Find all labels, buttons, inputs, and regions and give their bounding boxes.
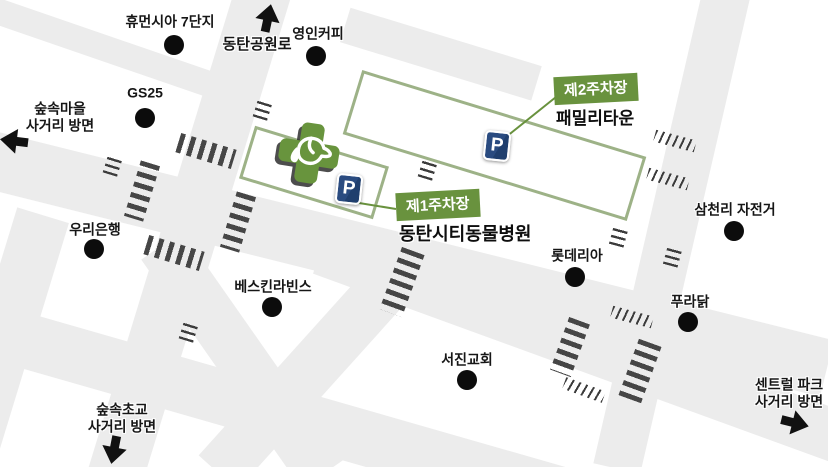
direction-line1: 숲속마을 [26,100,94,117]
hospital-name-label: 동탄시티동물병원 [399,220,531,246]
p-letter: P [342,177,357,200]
poi-label-lotteria: 롯데리아 [551,248,603,265]
road-name-dongtan-gongwonro: 동탄공원로 [222,36,291,54]
direction-line1: 숲속초교 [88,401,156,418]
poi-label-puradak: 푸라닭 [671,294,710,311]
poi-label-humansia: 휴먼시아 7단지 [126,14,215,31]
guide-map: P P 제1주차장 제2주차장 동탄시티동물병원 패밀리타운 휴먼시아 7단지 … [0,0,828,467]
poi-dot-seojin-church [457,370,477,390]
poi-dot-samchully-bicycle [724,221,744,241]
poi-dot-yeongin-coffee [306,46,326,66]
direction-line1: 센트럴 파크 [755,376,823,393]
poi-dot-lotteria [565,267,585,287]
familytown-label: 패밀리타운 [556,104,634,129]
direction-line2: 사거리 방면 [88,418,156,435]
poi-dot-baskin-robbins [262,297,282,317]
direction-line2: 사거리 방면 [26,117,94,134]
left-arrow-icon [0,124,34,158]
poi-label-woori-bank: 우리은행 [69,222,121,239]
down-arrow-icon [96,429,132,467]
poi-dot-humansia [164,35,184,55]
poi-dot-woori-bank [84,239,104,259]
poi-dot-gs25 [135,108,155,128]
direction-label-central-park: 센트럴 파크 사거리 방면 [755,376,823,409]
poi-label-gs25: GS25 [127,85,163,102]
poi-label-baskin-robbins: 베스킨라빈스 [234,279,311,296]
p-letter: P [490,134,505,157]
poi-dot-puradak [678,312,698,332]
poi-label-samchully-bicycle: 삼천리 자전거 [694,202,775,219]
direction-label-supsok-maeul: 숲속마을 사거리 방면 [26,100,94,133]
direction-label-supsok-chogyo: 숲속초교 사거리 방면 [88,401,156,434]
poi-label-seojin-church: 서진교회 [441,352,493,369]
poi-label-yeongin-coffee: 영인커피 [292,26,344,43]
parking-p-icon-lot1: P [335,173,364,206]
hospital-cross-dog-icon [274,118,344,188]
parking-lot1-badge: 제1주차장 [395,189,480,221]
parking-lot2-badge: 제2주차장 [553,73,638,105]
parking-p-icon-lot2: P [483,130,512,163]
